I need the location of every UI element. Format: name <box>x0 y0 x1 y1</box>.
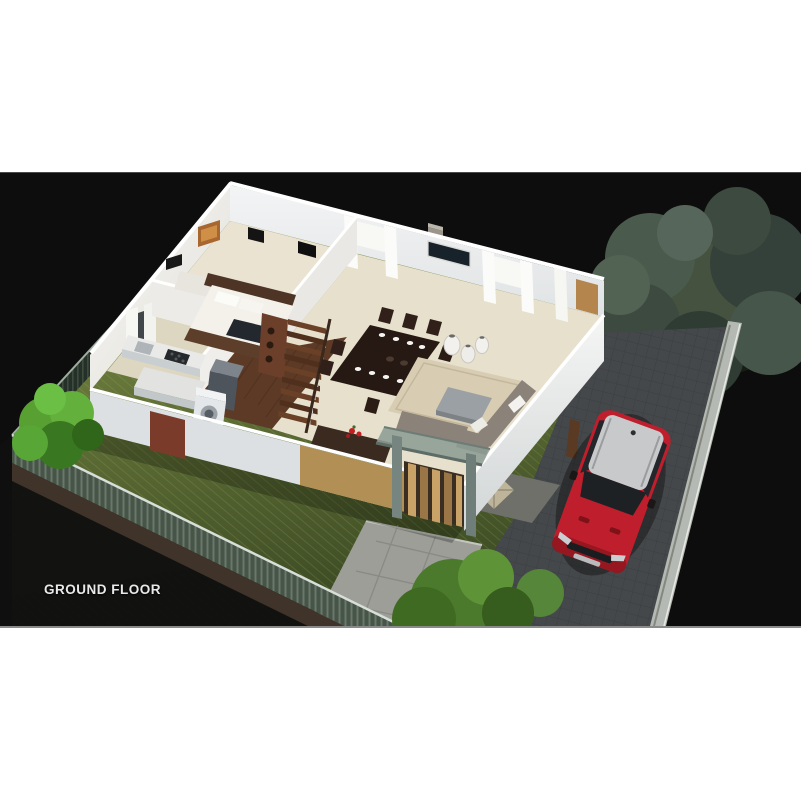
floorplan-3d-scene <box>0 173 801 626</box>
ground-floor-caption: GROUND FLOOR <box>44 582 161 597</box>
porch-column <box>466 453 476 537</box>
flower-vase-red <box>349 428 355 434</box>
curtain <box>482 250 496 304</box>
curtain <box>384 225 398 279</box>
floorplan-render-panel: GROUND FLOOR <box>0 172 801 628</box>
curtain <box>520 260 534 314</box>
porch-column <box>392 435 402 519</box>
warm-doorway <box>576 279 598 315</box>
page: GROUND FLOOR <box>0 0 801 801</box>
curtain <box>554 268 568 322</box>
